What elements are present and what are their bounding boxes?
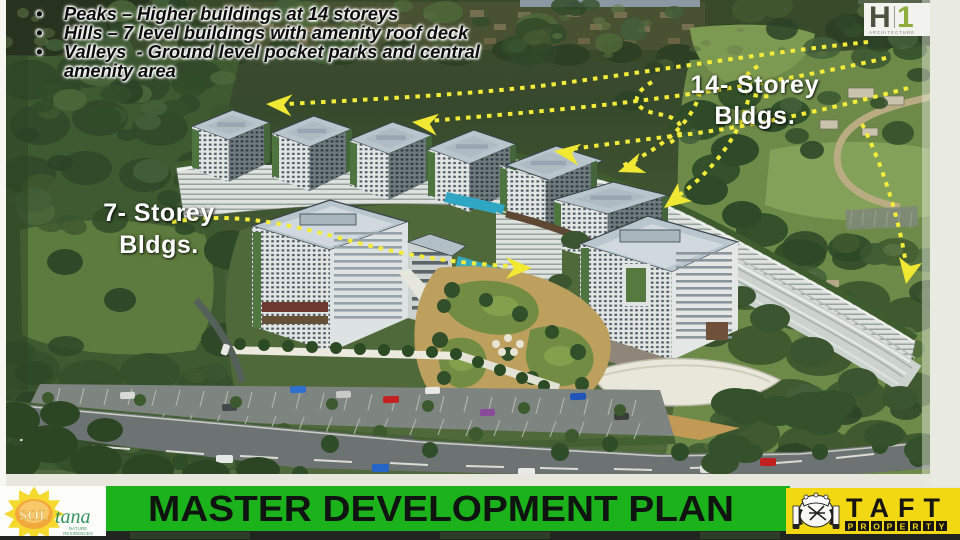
svg-text:P: P bbox=[887, 522, 893, 532]
svg-text:R: R bbox=[912, 522, 918, 532]
svg-text:R: R bbox=[860, 522, 866, 532]
svg-text:O: O bbox=[873, 522, 880, 532]
svg-text:E: E bbox=[900, 522, 906, 532]
svg-text:tana: tana bbox=[55, 506, 91, 528]
svg-text:T: T bbox=[926, 522, 932, 532]
svg-text:TAFT: TAFT bbox=[846, 493, 949, 523]
svg-text:Y: Y bbox=[939, 522, 945, 532]
svg-text:MASTER DEVELOPMENT PLAN: MASTER DEVELOPMENT PLAN bbox=[148, 488, 734, 529]
svg-text:SOL: SOL bbox=[19, 508, 49, 524]
svg-text:RESIDENCES: RESIDENCES bbox=[63, 531, 93, 536]
svg-text:P: P bbox=[848, 522, 854, 532]
